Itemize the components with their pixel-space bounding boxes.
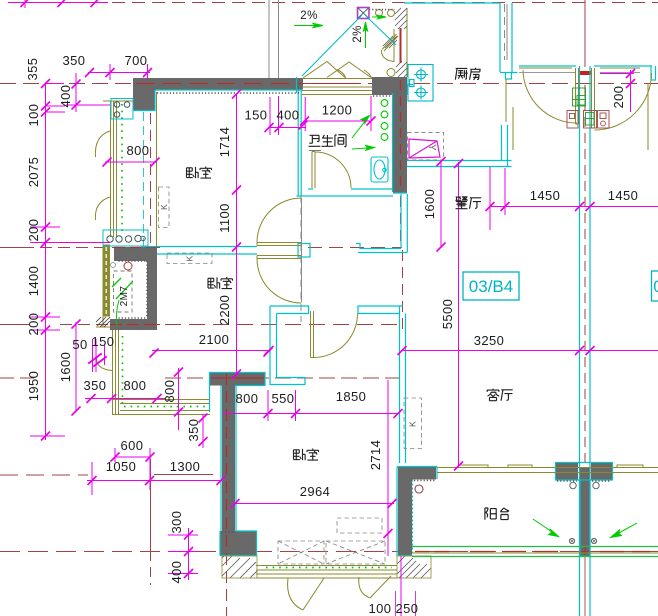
svg-text:100: 100 xyxy=(369,601,392,616)
svg-text:1100: 1100 xyxy=(217,203,232,233)
svg-text:600: 600 xyxy=(121,438,144,453)
svg-text:K: K xyxy=(185,255,195,261)
svg-text:1050: 1050 xyxy=(106,459,137,474)
svg-text:50: 50 xyxy=(72,337,87,352)
svg-text:1850: 1850 xyxy=(336,389,367,404)
svg-text:400: 400 xyxy=(169,561,184,584)
svg-text:200: 200 xyxy=(26,219,41,242)
svg-text:1200: 1200 xyxy=(322,103,353,118)
svg-text:300: 300 xyxy=(169,511,184,534)
svg-text:2714: 2714 xyxy=(368,440,383,471)
svg-text:2M7: 2M7 xyxy=(119,286,130,307)
svg-text:2100: 2100 xyxy=(199,332,230,347)
svg-text:1450: 1450 xyxy=(530,188,561,203)
svg-text:03/B4: 03/B4 xyxy=(469,277,513,296)
svg-text:1950: 1950 xyxy=(26,371,41,402)
svg-text:250: 250 xyxy=(396,601,419,616)
svg-text:350: 350 xyxy=(186,419,201,442)
svg-text:0: 0 xyxy=(653,277,658,296)
svg-text:1400: 1400 xyxy=(26,266,41,297)
svg-text:800: 800 xyxy=(236,391,259,406)
svg-text:800: 800 xyxy=(124,378,147,393)
svg-text:350: 350 xyxy=(84,378,107,393)
svg-text:800: 800 xyxy=(127,143,150,158)
svg-text:2200: 2200 xyxy=(217,295,232,326)
svg-text:150: 150 xyxy=(245,108,268,123)
svg-text:400: 400 xyxy=(277,108,300,123)
svg-text:700: 700 xyxy=(125,53,148,68)
svg-text:1300: 1300 xyxy=(170,459,201,474)
svg-text:2075: 2075 xyxy=(26,157,41,188)
svg-text:2%: 2% xyxy=(300,10,317,22)
svg-text:200: 200 xyxy=(611,86,626,109)
svg-text:2%: 2% xyxy=(352,25,364,42)
svg-text:1714: 1714 xyxy=(217,127,232,158)
svg-text:Y: Y xyxy=(426,144,437,151)
svg-text:350: 350 xyxy=(63,53,86,68)
svg-text:K: K xyxy=(408,421,418,427)
svg-text:100: 100 xyxy=(26,104,41,127)
svg-text:3250: 3250 xyxy=(474,333,505,348)
svg-text:5500: 5500 xyxy=(440,299,455,330)
svg-text:K: K xyxy=(159,204,169,210)
svg-text:2964: 2964 xyxy=(300,484,331,499)
svg-text:355: 355 xyxy=(25,58,40,81)
svg-text:1600: 1600 xyxy=(422,189,437,220)
svg-text:150: 150 xyxy=(92,334,115,349)
svg-text:200: 200 xyxy=(26,313,41,336)
svg-text:800: 800 xyxy=(162,380,177,403)
svg-text:1450: 1450 xyxy=(608,188,639,203)
svg-text:1600: 1600 xyxy=(58,352,73,383)
svg-text:550: 550 xyxy=(272,391,295,406)
svg-text:400: 400 xyxy=(58,85,73,108)
